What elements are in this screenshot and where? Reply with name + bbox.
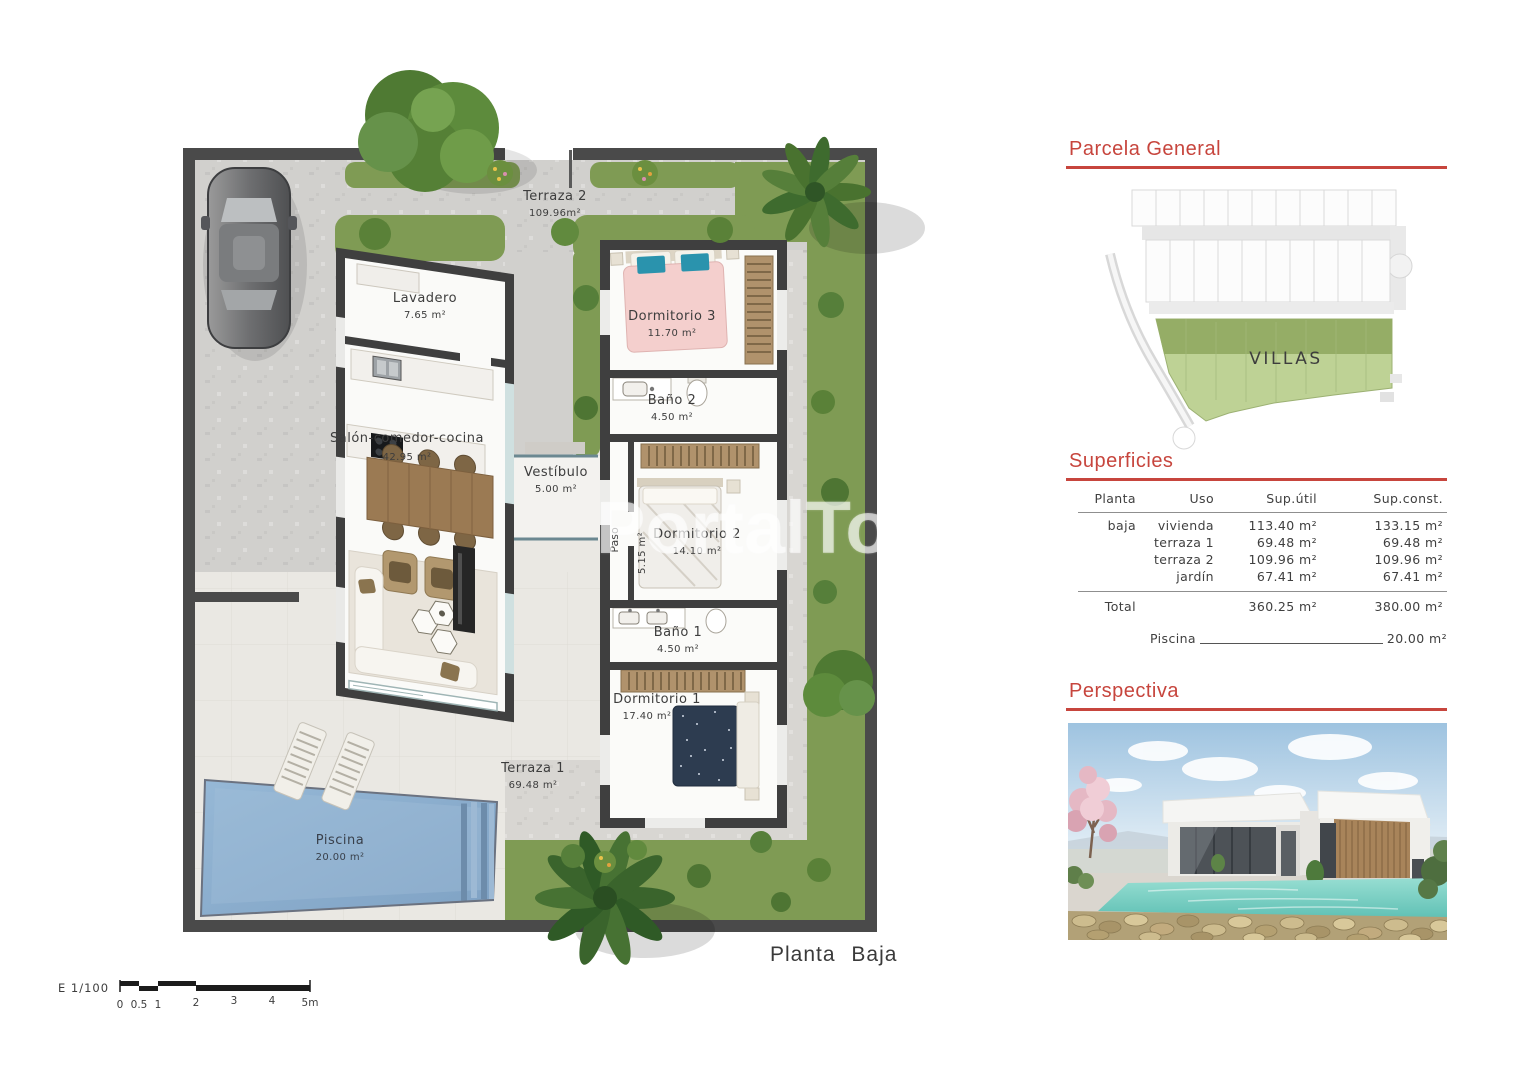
floor-plan-drawing: Terraza 2 109.96m² Lavadero 7.65 m² Dorm… — [175, 140, 885, 940]
perspectiva-title: Perspectiva — [1069, 680, 1179, 703]
label-lavadero-area: 7.65 m² — [404, 310, 446, 321]
label-piscina-area: 20.00 m² — [316, 852, 365, 863]
site-detail-block2 — [1390, 374, 1402, 383]
superficies-row: bajavivienda113.40 m²133.15 m² — [1066, 517, 1447, 534]
label-vestibulo-area: 5.00 m² — [535, 484, 577, 495]
scale-ticks: 0 0.5 1 2 3 4 5m — [117, 995, 319, 1011]
plan-title: Planta Baja — [770, 943, 930, 967]
cell-planta — [1066, 568, 1138, 585]
superficies-rows: bajavivienda113.40 m²133.15 m²terraza 16… — [1066, 517, 1447, 585]
scale-tick: 4 — [269, 995, 276, 1007]
cell-uso: terraza 1 — [1138, 534, 1216, 551]
bed-dorm1 — [673, 692, 759, 800]
car-mirror-left — [201, 216, 210, 230]
superficies-row: terraza 169.48 m²69.48 m² — [1066, 534, 1447, 551]
site-plots-top — [1132, 190, 1396, 226]
site-road-mid — [1149, 302, 1394, 314]
total-label: Total — [1066, 598, 1138, 615]
label-paso-name: Paso — [608, 527, 621, 553]
superficies-table: Planta Uso Sup.útil Sup.const. bajavivie… — [1066, 490, 1447, 646]
label-dormitorio1-name: Dormitorio 1 — [613, 692, 701, 707]
car — [201, 168, 307, 361]
piscina-value: 20.00 m² — [1387, 631, 1447, 646]
brochure-page: { "watermark": "PortalTo", "plan": { "ti… — [0, 0, 1529, 1080]
label-vestibulo-name: Vestíbulo — [524, 465, 588, 480]
flower-bush-bottom — [594, 851, 616, 873]
label-terraza1-name: Terraza 1 — [500, 761, 565, 776]
superficies-header: Planta Uso Sup.útil Sup.const. — [1066, 490, 1447, 510]
cell-const: 69.48 m² — [1319, 534, 1445, 551]
superficies-rule — [1066, 478, 1447, 481]
site-road-upper — [1142, 226, 1396, 240]
superficies-title: Superficies — [1069, 450, 1173, 473]
label-terraza1-area: 69.48 m² — [509, 780, 558, 791]
scale-tick: 0.5 — [131, 999, 148, 1011]
total-util: 360.25 m² — [1216, 598, 1319, 615]
scale-tick: 5m — [302, 997, 319, 1009]
piscina-row: Piscina 20.00 m² — [1150, 631, 1447, 646]
label-lavadero-name: Lavadero — [393, 291, 457, 306]
superficies-row: terraza 2109.96 m²109.96 m² — [1066, 551, 1447, 568]
cell-util: 109.96 m² — [1216, 551, 1319, 568]
site-plots-mid — [1146, 240, 1390, 302]
floor-plan: Terraza 2 109.96m² Lavadero 7.65 m² Dorm… — [175, 140, 885, 940]
label-terraza2-area: 109.96m² — [529, 208, 581, 219]
parcela-general-rule — [1066, 166, 1447, 169]
cell-util: 69.48 m² — [1216, 534, 1319, 551]
cell-uso: vivienda — [1138, 517, 1216, 534]
cell-uso: jardín — [1138, 568, 1216, 585]
fireplace — [453, 545, 475, 633]
site-map: VILLAS — [1094, 182, 1424, 450]
label-dormitorio2-name: Dormitorio 2 — [653, 527, 741, 542]
scale-tick: 1 — [155, 999, 162, 1011]
cell-util: 113.40 m² — [1216, 517, 1319, 534]
perspective-render — [1068, 723, 1447, 940]
total-const: 380.00 m² — [1319, 598, 1445, 615]
site-culdesac-right — [1388, 254, 1412, 278]
col-uso: Uso — [1138, 490, 1216, 510]
superficies-row: jardín67.41 m²67.41 m² — [1066, 568, 1447, 585]
perspectiva-rule — [1066, 708, 1447, 711]
cell-planta — [1066, 551, 1138, 568]
col-planta: Planta — [1066, 490, 1138, 510]
total-row: Total 360.25 m² 380.00 m² — [1066, 598, 1447, 615]
label-dormitorio3-area: 11.70 m² — [648, 328, 697, 339]
table-rule-top — [1078, 512, 1447, 513]
site-detail-block — [1380, 392, 1394, 402]
small-tree — [1211, 854, 1225, 872]
cell-util: 67.41 m² — [1216, 568, 1319, 585]
label-dormitorio2-area: 14.10 m² — [673, 546, 722, 557]
label-bano1-name: Baño 1 — [654, 625, 702, 640]
piscina-label: Piscina — [1150, 631, 1196, 646]
scale-tick: 3 — [231, 995, 238, 1007]
label-piscina-name: Piscina — [316, 833, 364, 848]
flower-bush-right — [632, 160, 658, 186]
scale-tick: 2 — [193, 997, 200, 1009]
col-sup-const: Sup.const. — [1319, 490, 1445, 510]
label-terraza2-name: Terraza 2 — [522, 189, 587, 204]
scale-bar: E 1/100 0 0.5 1 2 3 4 5m — [52, 972, 352, 1028]
label-bano2-name: Baño 2 — [648, 393, 696, 408]
scale-label: E 1/100 — [58, 981, 109, 995]
label-paso-area: 5.15 m² — [637, 532, 648, 574]
flower-bush-left — [487, 160, 513, 186]
cell-const: 133.15 m² — [1319, 517, 1445, 534]
label-dormitorio3-name: Dormitorio 3 — [628, 309, 716, 324]
col-sup-util: Sup.útil — [1216, 490, 1319, 510]
cell-uso: terraza 2 — [1138, 551, 1216, 568]
label-bano2-area: 4.50 m² — [651, 412, 693, 423]
piscina-underline — [1200, 631, 1383, 644]
cell-planta — [1066, 534, 1138, 551]
villa-building — [1163, 791, 1430, 878]
table-rule-bottom — [1078, 591, 1447, 592]
label-salon-name: Salón-comedor-cocina — [330, 431, 484, 446]
label-dormitorio1-area: 17.40 m² — [623, 711, 672, 722]
cell-const: 67.41 m² — [1319, 568, 1445, 585]
site-villas-label: VILLAS — [1249, 349, 1322, 369]
cell-planta: baja — [1066, 517, 1138, 534]
wardrobe-dorm2 — [641, 444, 759, 468]
label-salon-area: 42.95 m² — [383, 452, 432, 463]
parcela-general-title: Parcela General — [1069, 138, 1221, 161]
label-bano1-area: 4.50 m² — [657, 644, 699, 655]
scale-tick: 0 — [117, 999, 124, 1011]
scale-bar-segments — [120, 980, 310, 992]
car-mirror-right — [288, 216, 297, 230]
wardrobe-dorm1 — [621, 670, 745, 692]
sidebar: Parcela General VILLAS — [1066, 0, 1447, 1080]
cell-const: 109.96 m² — [1319, 551, 1445, 568]
